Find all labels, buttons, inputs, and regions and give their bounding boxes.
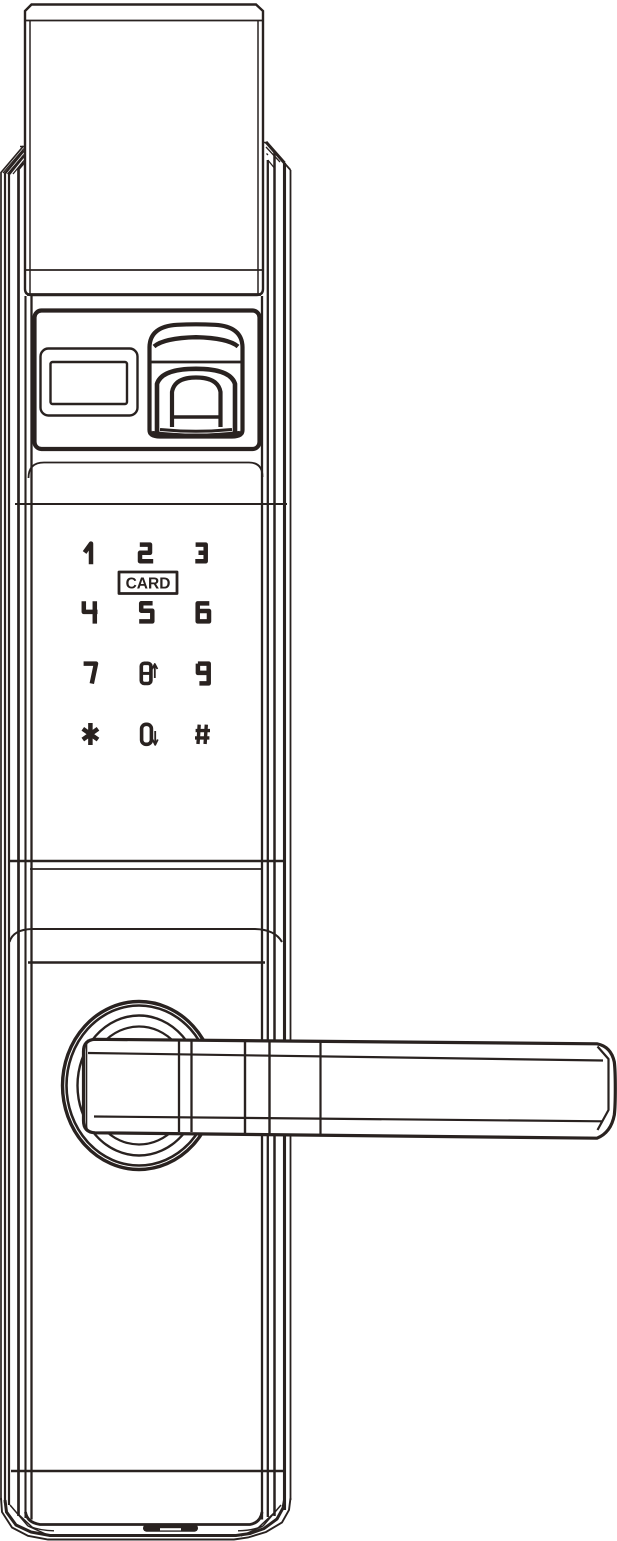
svg-text:CARD: CARD (126, 576, 171, 593)
